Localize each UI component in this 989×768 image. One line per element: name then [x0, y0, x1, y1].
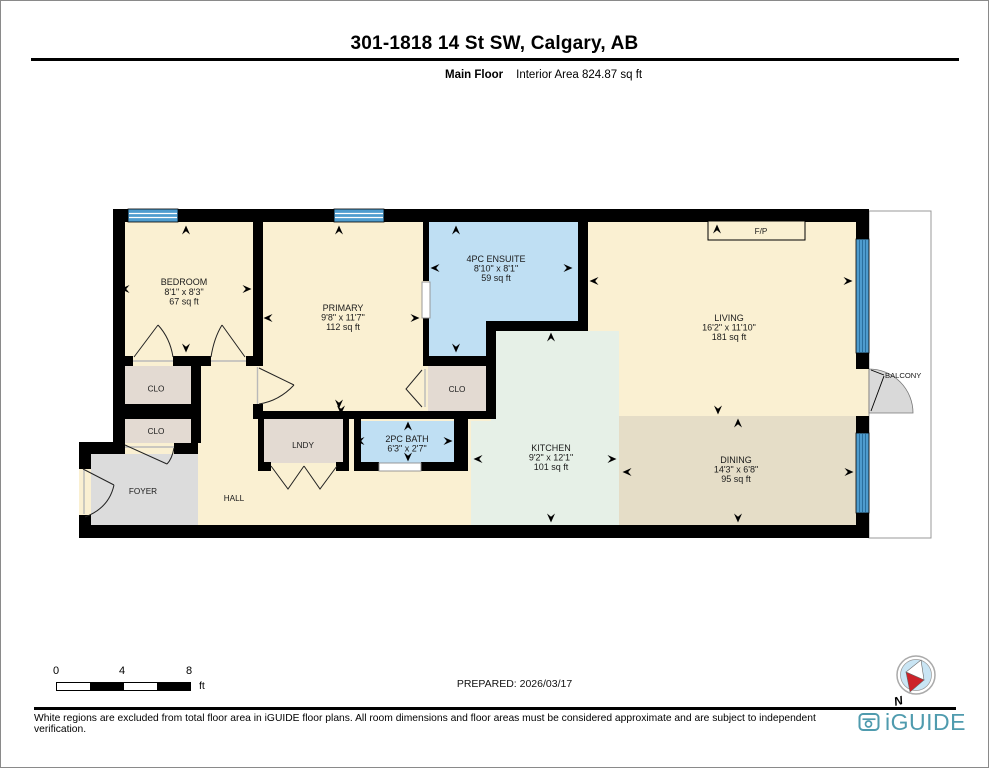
bedroom-area: 67 sq ft [169, 297, 199, 307]
fireplace-label: F/P [755, 227, 768, 236]
kitchen-name: KITCHEN [531, 443, 571, 453]
bedroom-dims: 8'1" x 8'3" [164, 287, 203, 297]
foyer-label: FOYER [129, 487, 157, 496]
living-dims: 16'2" x 11'10" [702, 323, 756, 333]
living-area: 181 sq ft [712, 332, 747, 342]
iguide-wordmark: iGUIDE [885, 709, 966, 736]
living-name: LIVING [714, 313, 744, 323]
closet3-label: CLO [449, 385, 466, 394]
primary-window [334, 209, 384, 222]
fireplace-box: F/P [708, 221, 805, 240]
primary-area: 112 sq ft [326, 322, 360, 332]
primary-dims: 9'8" x 11'7" [321, 313, 365, 323]
kitchen-area: 101 sq ft [534, 462, 569, 472]
ensuite-name: 4PC ENSUITE [466, 254, 525, 264]
ensuite-dims: 8'10" x 8'1" [474, 264, 518, 274]
prepared-date: PREPARED: 2026/03/17 [1, 678, 988, 690]
bath-pocket-door [379, 463, 421, 471]
balcony-label: BALCONY [885, 371, 921, 380]
bedroom-window [128, 209, 178, 222]
scale-tick-4: 4 [116, 665, 128, 677]
living-window [856, 239, 869, 353]
dining-area: 95 sq ft [721, 474, 751, 484]
floorplan-page: 301-1818 14 St SW, Calgary, AB Main Floo… [0, 0, 989, 768]
bedroom-name: BEDROOM [161, 277, 208, 287]
iguide-camera-icon [857, 711, 882, 734]
laundry-label: LNDY [292, 441, 314, 450]
iguide-logo: iGUIDE [857, 709, 966, 736]
ensuite-pocket-door [422, 282, 430, 318]
closet2-label: CLO [148, 427, 165, 436]
compass-icon [893, 652, 939, 698]
closet1-label: CLO [148, 385, 165, 394]
dining-dims: 14'3" x 6'8" [714, 465, 758, 475]
bath-name: 2PC BATH [385, 434, 428, 444]
bath-dims: 6'3" x 2'7" [387, 444, 426, 454]
scale-tick-0: 0 [50, 665, 62, 677]
primary-name: PRIMARY [323, 303, 364, 313]
floor-plan: F/P [1, 1, 989, 768]
dining-name: DINING [720, 455, 752, 465]
footer-divider [34, 707, 956, 710]
ensuite-area: 59 sq ft [481, 273, 511, 283]
dining-window [856, 433, 869, 513]
scale-tick-8: 8 [183, 665, 195, 677]
kitchen-dims: 9'2" x 12'1" [529, 453, 573, 463]
disclaimer-text: White regions are excluded from total fl… [34, 713, 824, 735]
hall-label: HALL [224, 494, 245, 503]
